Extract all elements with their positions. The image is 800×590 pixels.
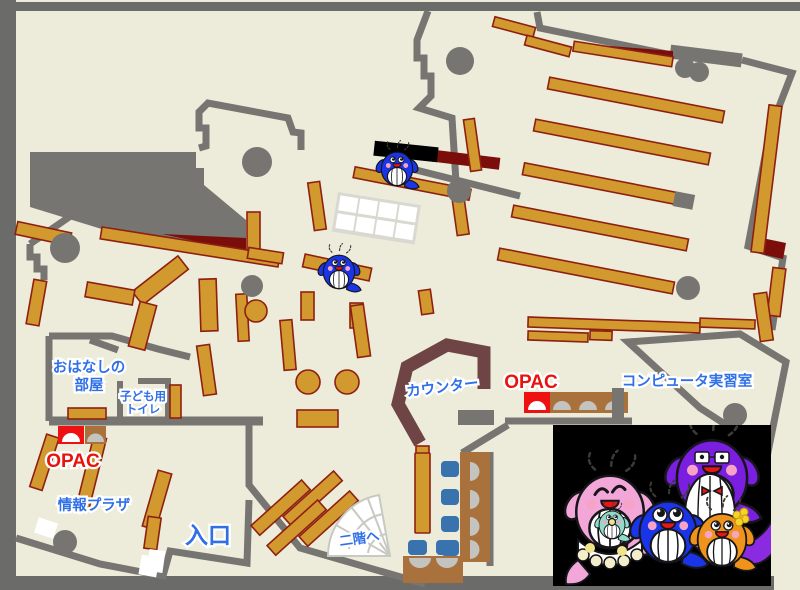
- left-frame-wall: [0, 0, 16, 590]
- top-frame-wall: [0, 2, 800, 11]
- label-kids-toilet-line2: トイレ: [126, 403, 161, 416]
- label-info-plaza: 情報プラザ: [58, 496, 131, 514]
- floor-map-canvas: おはなしの 部屋 子ども用 トイレ OPAC カウンター OPAC コンピュータ…: [0, 0, 800, 590]
- label-entrance: 入口: [185, 522, 231, 548]
- counter-desk-gray: [458, 410, 494, 425]
- label-ohanashi-room-line2: 部屋: [75, 376, 104, 394]
- label-opac-right: OPAC: [504, 372, 558, 393]
- label-ohanashi-room-line1: おはなしの: [53, 359, 126, 376]
- label-computer-room: コンピュータ実習室: [622, 372, 753, 390]
- door-gap-3: [147, 549, 166, 573]
- library-floor-map: おはなしの 部屋 子ども用 トイレ OPAC カウンター OPAC コンピュータ…: [0, 0, 800, 590]
- label-opac-left: OPAC: [46, 451, 100, 472]
- label-kids-toilet-line1: 子ども用: [120, 390, 166, 403]
- opac-station-left: [58, 426, 106, 444]
